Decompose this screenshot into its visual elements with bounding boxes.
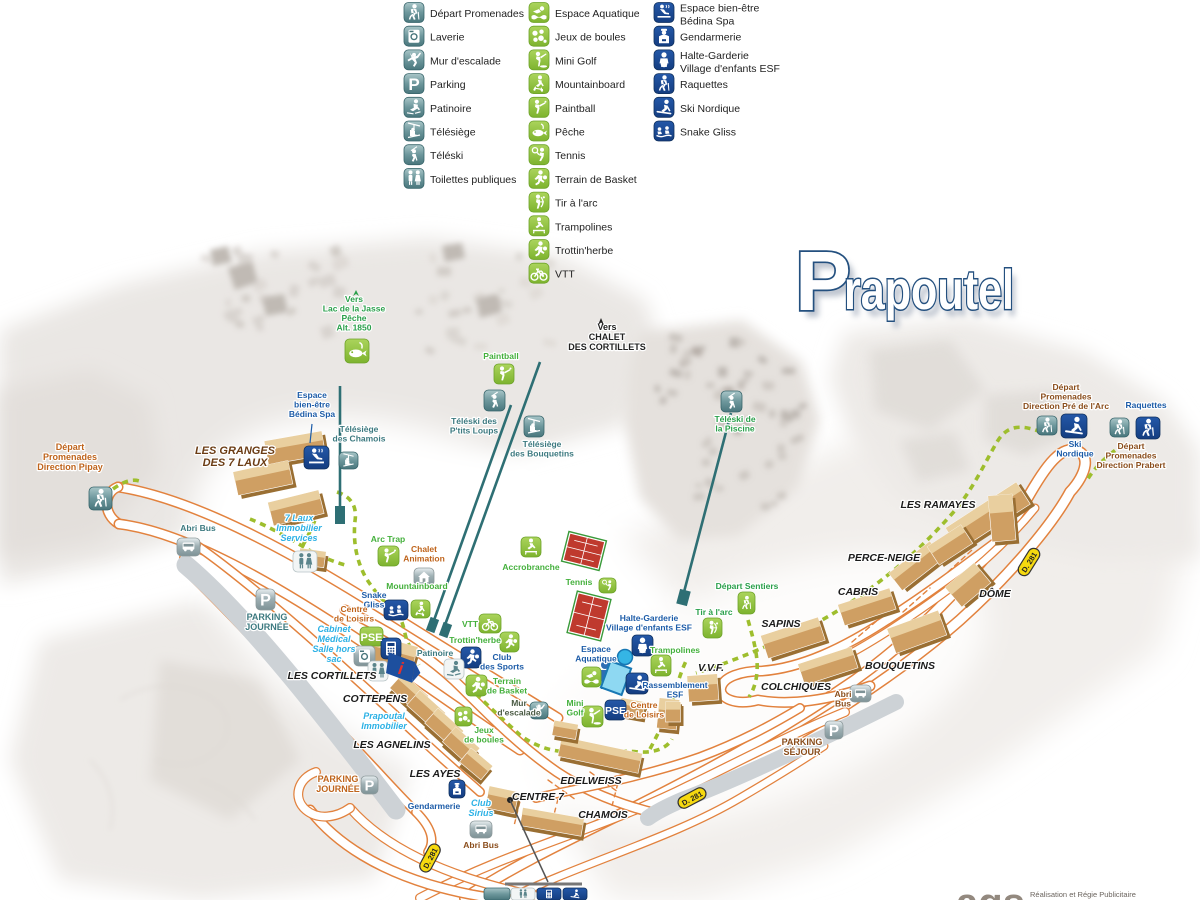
svg-text:EspaceAquatique: EspaceAquatique — [575, 644, 617, 664]
svg-text:LES RAMAYES: LES RAMAYES — [900, 499, 975, 511]
svg-text:Terrain de Basket: Terrain de Basket — [555, 174, 637, 186]
svg-text:Départ Promenades: Départ Promenades — [430, 8, 524, 20]
svg-text:SAPINS: SAPINS — [761, 618, 800, 630]
svg-text:VTT: VTT — [462, 619, 479, 629]
svg-text:Mountainboard: Mountainboard — [555, 79, 625, 91]
svg-text:PARKINGJOURNÉE: PARKINGJOURNÉE — [316, 774, 360, 794]
svg-text:Ski Nordique: Ski Nordique — [680, 103, 740, 115]
svg-text:Téléski desP'tits Loups: Téléski desP'tits Loups — [450, 416, 499, 436]
svg-text:Mountainboard: Mountainboard — [386, 581, 447, 591]
svg-text:Accrobranche: Accrobranche — [502, 562, 559, 572]
svg-text:Téléski: Téléski — [430, 150, 463, 162]
svg-text:Toilettes publiques: Toilettes publiques — [430, 174, 516, 186]
svg-text:rapoutel: rapoutel — [844, 258, 1014, 321]
svg-text:Bédina Spa: Bédina Spa — [680, 16, 734, 28]
svg-text:PERCE-NEIGE: PERCE-NEIGE — [848, 552, 921, 564]
svg-text:Télésiègedes Chamois: Télésiègedes Chamois — [333, 424, 386, 444]
svg-text:CENTRE 7: CENTRE 7 — [512, 791, 565, 803]
svg-text:Raquettes: Raquettes — [1125, 400, 1166, 410]
svg-text:Abri Bus: Abri Bus — [463, 840, 499, 850]
svg-text:EDELWEISS: EDELWEISS — [560, 775, 621, 787]
svg-text:Patinoire: Patinoire — [417, 648, 454, 658]
svg-text:Laverie: Laverie — [430, 32, 465, 44]
svg-text:PSE: PSE — [360, 632, 382, 644]
svg-text:Snake Gliss: Snake Gliss — [680, 127, 736, 139]
svg-text:Mini Golf: Mini Golf — [555, 55, 597, 67]
svg-text:MiniGolf: MiniGolf — [567, 698, 584, 718]
svg-text:Départ Sentiers: Départ Sentiers — [716, 581, 779, 591]
svg-text:Pêche: Pêche — [555, 127, 585, 139]
svg-text:Mur d'escalade: Mur d'escalade — [430, 55, 501, 67]
svg-text:Tir à l'arc: Tir à l'arc — [695, 607, 733, 617]
svg-text:DÔME: DÔME — [979, 587, 1011, 600]
svg-text:ClubSirius: ClubSirius — [468, 798, 493, 818]
svg-text:Parking: Parking — [430, 79, 466, 91]
svg-text:Trampolines: Trampolines — [555, 221, 612, 233]
svg-text:Paintball: Paintball — [555, 103, 595, 115]
svg-text:PSE: PSE — [605, 705, 626, 717]
svg-text:CABRIS: CABRIS — [838, 586, 878, 598]
svg-text:Gendarmerie: Gendarmerie — [680, 32, 741, 44]
svg-text:LES AYES: LES AYES — [410, 768, 461, 780]
svg-text:P: P — [795, 234, 851, 328]
svg-text:BOUQUETINS: BOUQUETINS — [865, 660, 935, 672]
svg-text:Télésiège: Télésiège — [430, 127, 476, 139]
svg-text:PARKINGJOURNÉE: PARKINGJOURNÉE — [245, 612, 289, 632]
svg-text:PrapoutalImmobilier: PrapoutalImmobilier — [361, 711, 407, 731]
svg-text:PARKINGSÉJOUR: PARKINGSÉJOUR — [782, 737, 823, 757]
svg-text:Tennis: Tennis — [566, 577, 593, 587]
svg-text:Halte-Garderie: Halte-Garderie — [680, 50, 749, 62]
svg-text:Tennis: Tennis — [555, 150, 585, 162]
svg-text:Tir à l'arc: Tir à l'arc — [555, 198, 597, 210]
svg-text:V.V.F.: V.V.F. — [698, 662, 724, 674]
svg-text:Jeux de boules: Jeux de boules — [555, 32, 626, 44]
svg-text:Téléski dela Piscine: Téléski dela Piscine — [714, 414, 755, 434]
svg-text:Réalisation et Régie Publicita: Réalisation et Régie Publicitaire — [1030, 890, 1136, 899]
svg-text:LES GRANGESDES 7 LAUX: LES GRANGESDES 7 LAUX — [195, 445, 276, 469]
svg-text:LES AGNELINS: LES AGNELINS — [353, 739, 430, 751]
svg-text:COLCHIQUES: COLCHIQUES — [761, 681, 831, 693]
svg-text:COTTEPENS: COTTEPENS — [343, 693, 407, 705]
svg-text:Trottin'herbe: Trottin'herbe — [449, 635, 501, 645]
svg-text:Raquettes: Raquettes — [680, 79, 728, 91]
svg-text:AbriBus: AbriBus — [835, 689, 852, 709]
svg-text:LES CORTILLETS: LES CORTILLETS — [287, 670, 376, 682]
svg-text:Espace Aquatique: Espace Aquatique — [555, 8, 640, 20]
svg-text:Abri Bus: Abri Bus — [180, 523, 216, 533]
svg-text:Arc Trap: Arc Trap — [371, 534, 406, 544]
svg-text:ags: ags — [956, 881, 1025, 900]
svg-text:Espace bien-être: Espace bien-être — [680, 3, 760, 15]
svg-text:CHAMOIS: CHAMOIS — [578, 809, 628, 821]
svg-text:Trampolines: Trampolines — [650, 645, 700, 655]
svg-text:Paintball: Paintball — [483, 351, 518, 361]
svg-text:Trottin'herbe: Trottin'herbe — [555, 245, 613, 257]
svg-text:Patinoire: Patinoire — [430, 103, 472, 115]
svg-text:Village d'enfants ESF: Village d'enfants ESF — [680, 63, 780, 75]
svg-text:Gendarmerie: Gendarmerie — [408, 801, 461, 811]
svg-text:VTT: VTT — [555, 269, 575, 281]
